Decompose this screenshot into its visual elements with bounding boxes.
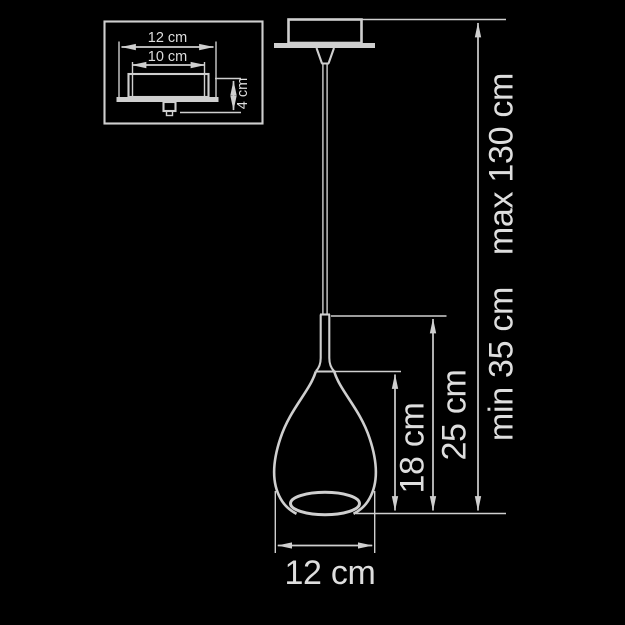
- inset-outer-width-label: 12 cm: [148, 30, 188, 46]
- dimension-annotations: 18 cm 25 cm max 130 cm min 35 cm 12 cm: [275, 20, 520, 593]
- inset-inner-width-label: 10 cm: [148, 49, 188, 65]
- inset-height-label: 4 cm: [235, 78, 251, 109]
- pendant-drawing: [274, 20, 376, 515]
- cable-gland-cone: [317, 48, 335, 64]
- suspension-max-label: max 130 cm: [483, 73, 521, 255]
- canopy-connector-nub: [167, 111, 173, 116]
- lamp-stem-left: [316, 315, 321, 372]
- diagram-canvas: 12 cm 10 cm 4 cm: [0, 0, 625, 625]
- canopy-body-side-view: [129, 74, 209, 97]
- pendant-lamp-dimension-diagram: 12 cm 10 cm 4 cm: [0, 0, 625, 625]
- shade-width-label: 12 cm: [284, 554, 375, 592]
- ceiling-canopy: [289, 20, 362, 44]
- shade-bottom-opening: [291, 492, 360, 514]
- body-height-label: 25 cm: [436, 369, 474, 460]
- shade-height-label: 18 cm: [394, 402, 432, 493]
- suspension-min-label: min 35 cm: [483, 287, 521, 441]
- mount-detail-inset: 12 cm 10 cm 4 cm: [105, 22, 263, 124]
- lamp-stem-right: [329, 315, 334, 372]
- canopy-cable-connector: [164, 102, 176, 111]
